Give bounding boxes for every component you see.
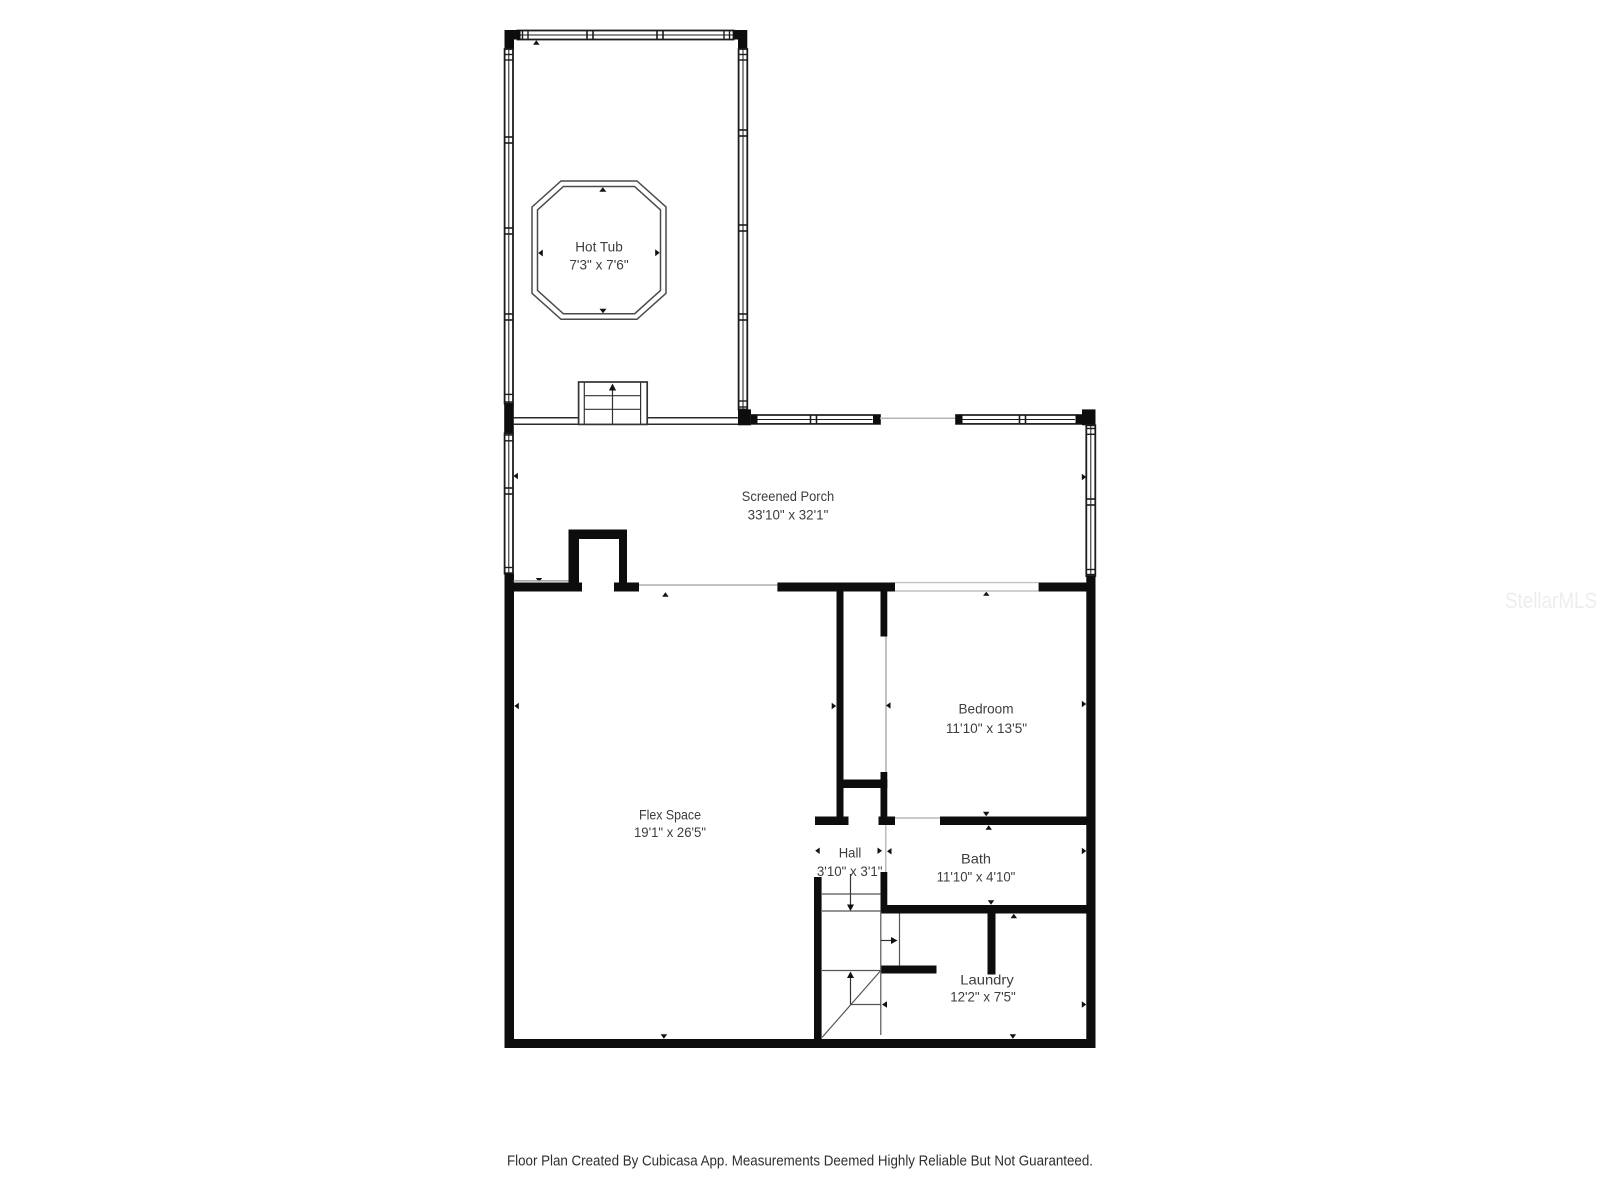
svg-text:11'10" x 13'5": 11'10" x 13'5" — [946, 720, 1027, 736]
svg-text:Bedroom: Bedroom — [959, 701, 1014, 717]
svg-text:Floor Plan Created By Cubicasa: Floor Plan Created By Cubicasa App. Meas… — [507, 1153, 1093, 1170]
svg-text:Flex Space: Flex Space — [639, 807, 701, 823]
svg-text:Screened Porch: Screened Porch — [742, 488, 834, 504]
svg-text:3'10" x 3'1": 3'10" x 3'1" — [817, 863, 883, 879]
svg-text:33'10" x 32'1": 33'10" x 32'1" — [748, 507, 829, 523]
svg-text:19'1" x 26'5": 19'1" x 26'5" — [634, 824, 706, 840]
svg-text:Hall: Hall — [839, 845, 862, 861]
svg-text:Hot Tub: Hot Tub — [575, 239, 623, 255]
svg-text:StellarMLS: StellarMLS — [1505, 588, 1597, 613]
svg-text:Bath: Bath — [961, 851, 991, 867]
svg-text:Laundry: Laundry — [960, 972, 1014, 988]
svg-text:12'2" x 7'5": 12'2" x 7'5" — [950, 989, 1016, 1005]
svg-text:11'10" x 4'10": 11'10" x 4'10" — [937, 869, 1016, 885]
svg-text:7'3" x 7'6": 7'3" x 7'6" — [569, 257, 628, 273]
